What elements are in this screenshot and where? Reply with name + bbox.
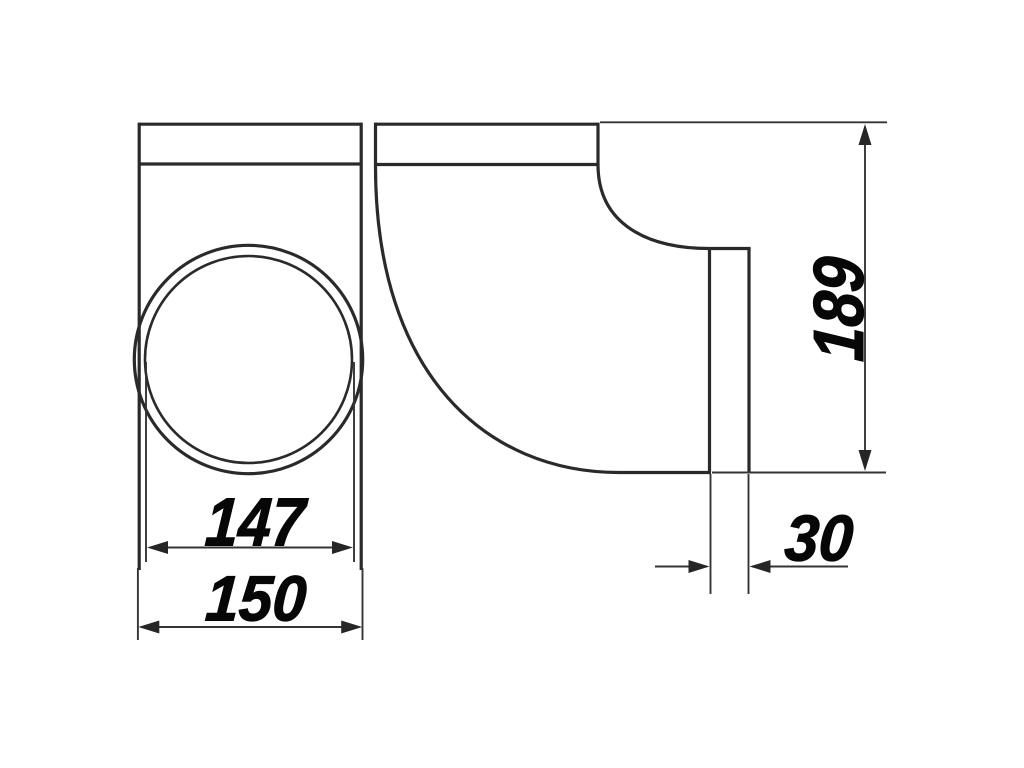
svg-text:30: 30 (783, 503, 856, 575)
svg-text:150: 150 (203, 564, 309, 635)
svg-text:147: 147 (203, 483, 310, 560)
svg-text:189: 189 (800, 254, 879, 363)
